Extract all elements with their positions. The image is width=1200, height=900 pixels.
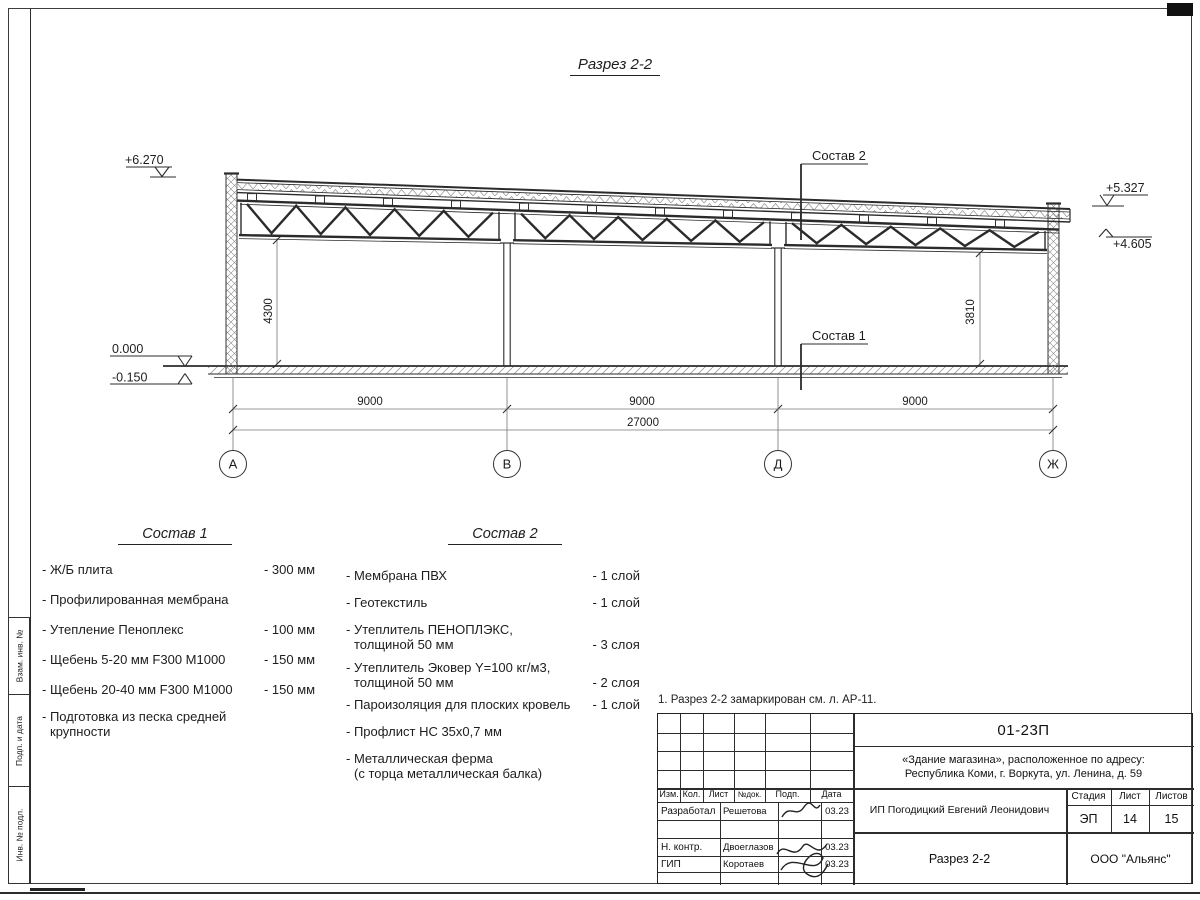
list-item: - Ж/Б плита - 300 мм [42,562,334,577]
title-block: Изм. Кол. Лист №док. Подп. Дата Разработ… [657,713,1193,884]
list-item: - Подготовка из песка средней крупности [42,709,334,739]
list-item: - Утеплитель Эковер Y=100 кг/м3, толщино… [346,660,648,690]
item-name: - Профлист НС 35х0,7 мм [346,724,593,739]
item-value: - 1 слой [593,697,648,712]
sheet-note: 1. Разрез 2-2 замаркирован см. л. АР-11. [658,694,978,706]
axis-label-b: В [503,457,512,472]
frame-bottom-edge-line [0,892,1200,894]
list-item: - Утеплитель ПЕНОПЛЭКС, толщиной 50 мм -… [346,622,648,652]
signature-developer [780,801,822,821]
stamp-line [658,820,853,821]
stamp-col-podp: Подп. [765,789,810,799]
dim-total: 27000 [627,417,659,429]
item-value: - 300 мм [264,562,334,577]
side-stamp-inv: Инв. № подл. [8,786,30,884]
item-name: - Щебень 5-20 мм F300 М1000 [42,652,264,667]
side-stamp-label: Подп. и дата [14,715,24,765]
elev-parapet-left: +6.270 [125,153,164,167]
stamp-line [658,751,853,752]
stamp-col-list: Лист [703,789,734,799]
stamp-client: ИП Погодицкий Евгений Леонидович [855,788,1064,832]
dim-left-height: 4300 [263,298,275,324]
stamp-sheet-value: 14 [1111,805,1149,832]
item-name: - Утеплитель ПЕНОПЛЭКС, толщиной 50 мм [346,622,593,652]
sostav1-heading: Состав 1 [118,526,232,545]
sostav1-heading-text: Состав 1 [142,526,207,542]
sostav1-list: - Ж/Б плита - 300 мм - Профилированная м… [42,562,334,739]
list-item: - Щебень 20-40 мм F300 М1000 - 150 мм [42,682,334,697]
list-item: - Утепление Пеноплекс - 100 мм [42,622,334,637]
item-name: - Мембрана ПВХ [346,568,593,583]
item-name: - Щебень 20-40 мм F300 М1000 [42,682,264,697]
item-name: - Утеплитель Эковер Y=100 кг/м3, толщино… [346,660,593,690]
stamp-role-gip: ГИП [661,859,681,870]
list-item: - Мембрана ПВХ - 1 слой [346,568,648,583]
dim-bay1: 9000 [357,396,383,408]
stamp-line [658,802,853,803]
list-item: - Профлист НС 35х0,7 мм [346,724,648,739]
side-stamp-label: Взам. инв. № [14,630,24,683]
stamp-stage-value: ЭП [1066,805,1111,832]
elev-parapet-right: +5.327 [1106,181,1145,195]
item-name: - Подготовка из песка средней крупности [42,709,264,739]
stamp-object-name: «Здание магазина», расположенное по адре… [853,747,1194,787]
list-item: - Металлическая ферма (с торца металличе… [346,751,648,781]
leader-sostav1-label: Состав 1 [812,328,866,343]
item-value: - 2 слоя [593,675,648,690]
elev-truss-right: +4.605 [1113,237,1152,251]
dim-right-height: 3810 [965,299,977,325]
axis-label-g: Ж [1047,457,1059,472]
elev-ground: -0.150 [112,371,147,385]
side-stamp-podp: Подп. и дата [8,694,30,787]
stamp-name-gip: Коротаев [723,859,764,870]
side-stamp-vzam: Взам. инв. № [8,617,30,695]
stamp-name-developer: Решетова [723,806,767,817]
item-value: - 1 слой [593,568,648,583]
fold-mark [30,888,85,891]
item-name: - Металлическая ферма (с торца металличе… [346,751,593,781]
stamp-doc-title: Разрез 2-2 [853,833,1066,885]
stamp-sheets-value: 15 [1149,805,1194,832]
stamp-project-code: 01-23П [853,714,1194,746]
list-item: - Пароизоляция для плоских кровель - 1 с… [346,697,648,712]
item-name: - Утепление Пеноплекс [42,622,264,637]
stamp-col-izm: Изм. [658,789,680,799]
stamp-col-data: Дата [810,789,853,799]
sostav2-heading: Состав 2 [448,526,562,545]
sostav2-heading-text: Состав 2 [472,526,537,542]
item-name: - Пароизоляция для плоских кровель [346,697,593,712]
stamp-date-developer: 03.23 [821,806,853,817]
stamp-stage-label: Стадия [1066,788,1111,805]
elev-floor: 0.000 [112,342,143,356]
stamp-name-ncontr: Двоеглазов [723,842,774,853]
item-value: - 150 мм [264,652,334,667]
stamp-role-ncontr: Н. контр. [661,842,702,853]
stamp-company: ООО "Альянс" [1067,833,1194,885]
axis-bubbles [220,451,1067,478]
stamp-col-kol: Кол. [680,789,703,799]
axis-label-a: А [229,457,238,472]
stamp-line [658,770,853,771]
list-item: - Профилированная мембрана [42,592,334,607]
item-name: - Геотекстиль [346,595,593,610]
item-value: - 1 слой [593,595,648,610]
stamp-role-developer: Разработал [661,806,715,817]
item-name: - Профилированная мембрана [42,592,264,607]
leader-sostav2-label: Состав 2 [812,148,866,163]
section-drawing: А В Д Ж 9000 9000 9000 27000 4300 3810 +… [0,0,1200,520]
item-value: - 100 мм [264,622,334,637]
item-value: - 3 слоя [593,637,648,652]
axis-label-d: Д [774,457,783,472]
sostav2-list: - Мембрана ПВХ - 1 слой - Геотекстиль - … [346,562,648,781]
dim-bay2: 9000 [629,396,655,408]
stamp-col-ndoc: №док. [734,790,765,799]
signature-ncontr-gip [773,836,831,882]
stamp-line [658,733,853,734]
item-name: - Ж/Б плита [42,562,264,577]
dim-bay3: 9000 [902,396,928,408]
side-stamp-label: Инв. № подл. [14,809,24,862]
item-value: - 150 мм [264,682,334,697]
list-item: - Щебень 5-20 мм F300 М1000 - 150 мм [42,652,334,667]
stamp-sheet-label: Лист [1111,788,1149,805]
stamp-sheets-label: Листов [1149,788,1194,805]
list-item: - Геотекстиль - 1 слой [346,595,648,610]
